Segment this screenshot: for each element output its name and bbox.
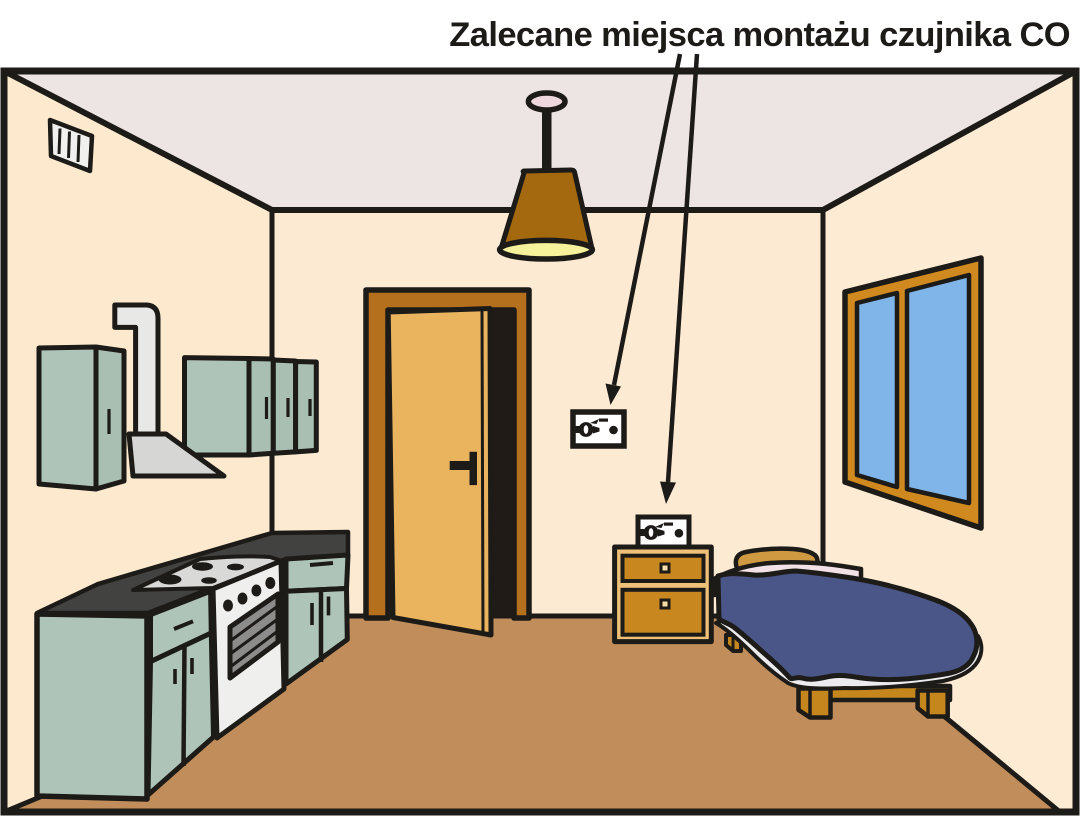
svg-text:Zalecane miejsca montażu czujn: Zalecane miejsca montażu czujnika CO [449, 16, 1070, 54]
